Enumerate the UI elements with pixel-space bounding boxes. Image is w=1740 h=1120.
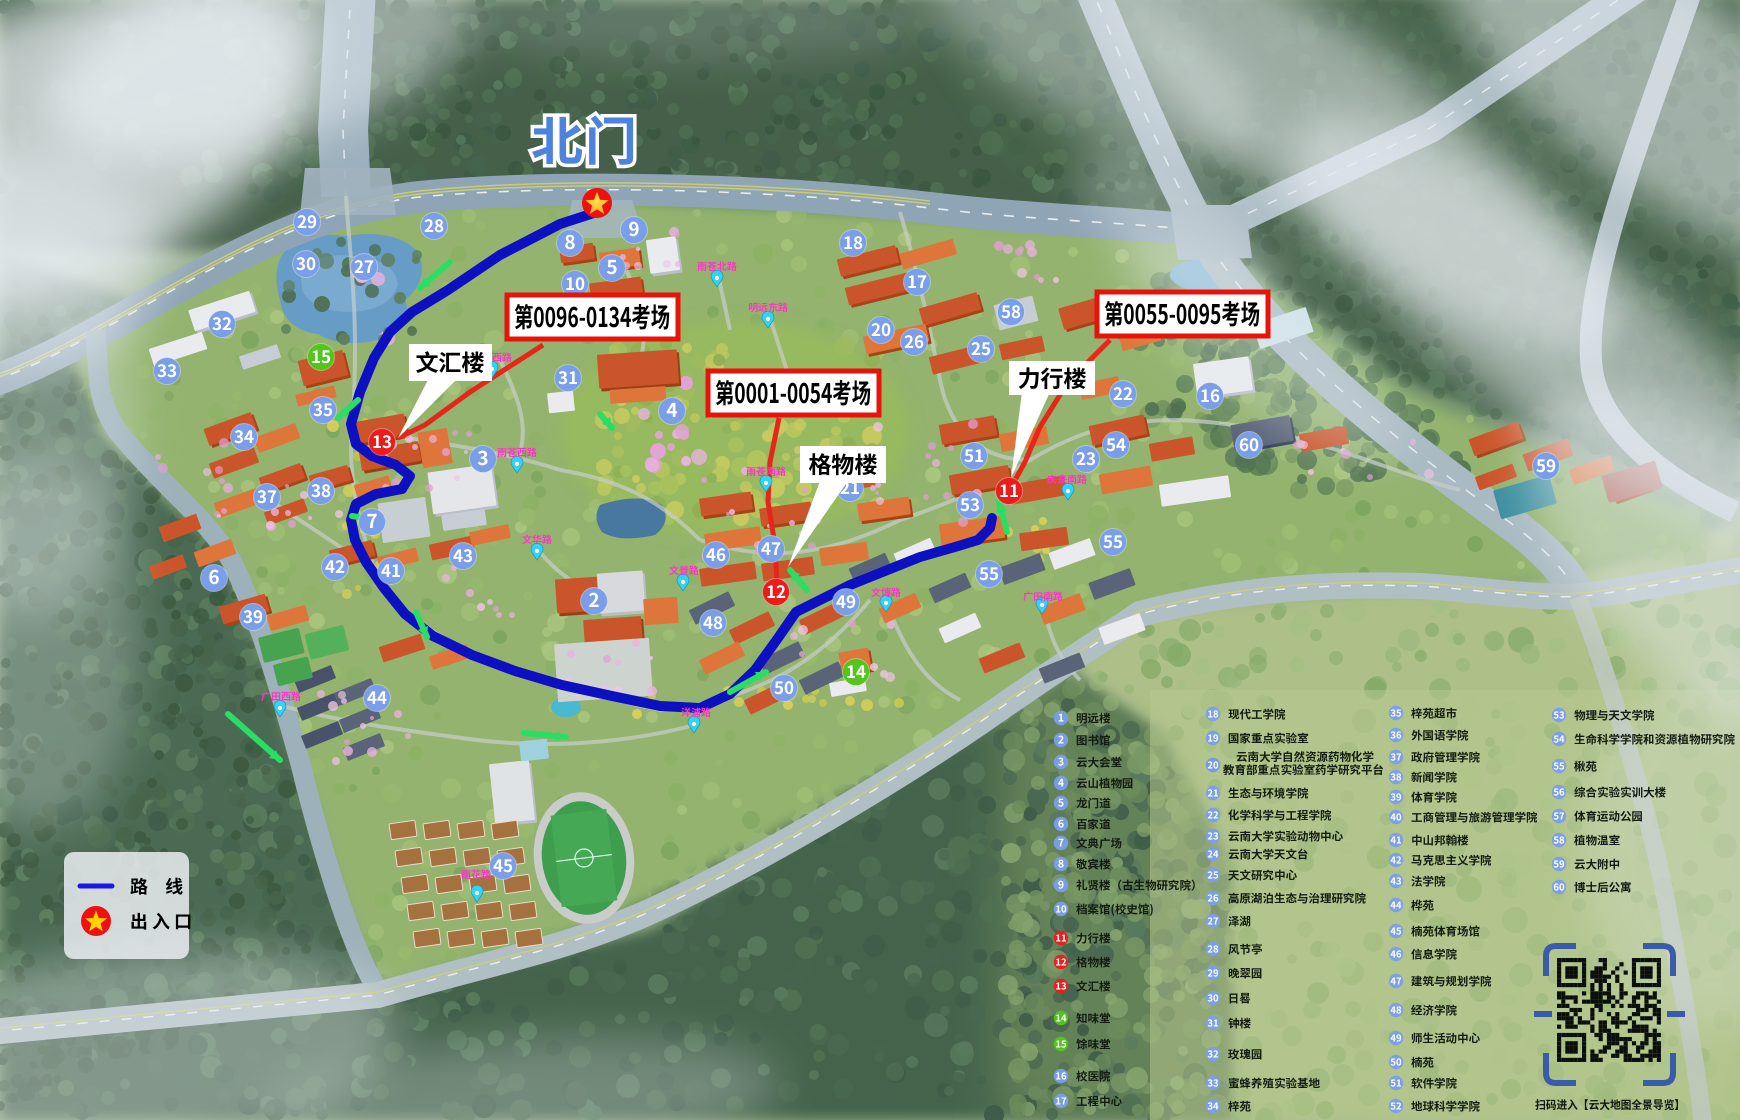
svg-text:60: 60 <box>1239 431 1259 456</box>
svg-text:27: 27 <box>354 253 374 278</box>
svg-text:10: 10 <box>565 270 585 295</box>
svg-text:54: 54 <box>1106 431 1126 456</box>
svg-text:广田西路: 广田西路 <box>261 688 302 703</box>
svg-text:庆来南路: 庆来南路 <box>1046 471 1088 486</box>
svg-text:5: 5 <box>606 253 617 280</box>
svg-text:11: 11 <box>999 477 1019 502</box>
svg-text:3: 3 <box>477 444 488 471</box>
svg-text:17: 17 <box>907 268 927 293</box>
svg-text:23: 23 <box>1076 445 1096 470</box>
svg-text:26: 26 <box>904 328 924 353</box>
svg-text:42: 42 <box>325 553 345 578</box>
svg-text:9: 9 <box>628 215 639 242</box>
svg-text:53: 53 <box>960 491 980 516</box>
svg-text:6: 6 <box>208 563 219 590</box>
svg-text:文博路: 文博路 <box>871 584 902 599</box>
svg-text:38: 38 <box>311 477 331 502</box>
svg-text:20: 20 <box>871 316 891 341</box>
svg-text:51: 51 <box>964 442 984 467</box>
svg-text:文景路: 文景路 <box>669 562 700 577</box>
svg-text:雨苍南路: 雨苍南路 <box>746 463 787 478</box>
svg-text:雨花路: 雨花路 <box>461 866 492 881</box>
svg-text:34: 34 <box>234 423 254 448</box>
svg-text:22: 22 <box>1113 380 1133 405</box>
svg-text:25: 25 <box>971 335 991 360</box>
svg-text:广田南路: 广田南路 <box>1023 588 1064 603</box>
svg-text:雨苍北路: 雨苍北路 <box>697 258 738 273</box>
svg-text:13: 13 <box>372 428 392 453</box>
svg-text:4: 4 <box>666 396 677 423</box>
svg-text:29: 29 <box>297 208 317 233</box>
svg-text:33: 33 <box>157 357 177 382</box>
svg-text:37: 37 <box>257 483 277 508</box>
svg-text:35: 35 <box>313 396 333 421</box>
svg-text:文华路: 文华路 <box>522 531 553 546</box>
svg-text:18: 18 <box>843 229 863 254</box>
svg-text:59: 59 <box>1536 452 1556 477</box>
svg-text:15: 15 <box>311 343 331 368</box>
svg-text:16: 16 <box>1200 382 1220 407</box>
svg-text:32: 32 <box>212 310 232 335</box>
svg-text:洋浦路: 洋浦路 <box>681 704 712 719</box>
svg-text:明远东路: 明远东路 <box>748 299 789 314</box>
svg-text:58: 58 <box>1001 298 1021 323</box>
svg-text:31: 31 <box>558 364 578 389</box>
svg-text:雨苍西路: 雨苍西路 <box>497 444 538 459</box>
svg-text:28: 28 <box>424 212 444 237</box>
svg-text:30: 30 <box>296 250 316 275</box>
svg-text:8: 8 <box>564 228 575 255</box>
